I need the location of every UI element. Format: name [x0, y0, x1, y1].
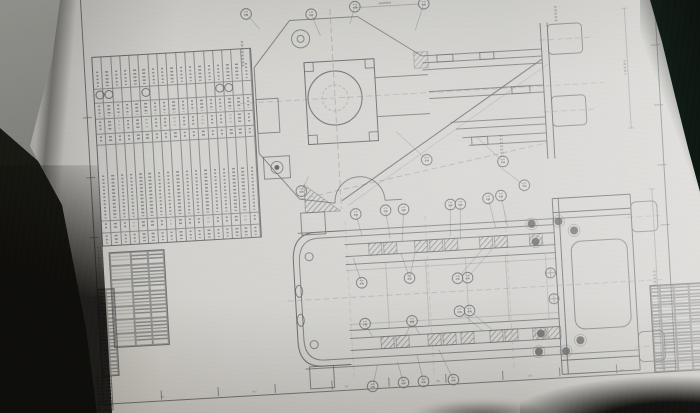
table-text — [112, 269, 131, 277]
table-text — [244, 215, 247, 222]
table-text — [136, 335, 152, 343]
table-text — [130, 174, 135, 217]
title-block-text — [679, 362, 692, 367]
table-text — [124, 234, 127, 242]
title-block-text — [692, 333, 700, 339]
table-text — [124, 70, 127, 85]
shadow-bottom-center — [408, 396, 558, 413]
table-text — [220, 115, 223, 125]
table-text — [115, 235, 118, 243]
table-text — [115, 336, 134, 344]
table-text — [106, 235, 109, 243]
table-text — [98, 106, 101, 117]
table-text — [239, 128, 242, 134]
table-text — [219, 99, 222, 110]
table-text — [204, 170, 209, 213]
table-text — [164, 118, 167, 128]
table-text — [211, 130, 214, 136]
table-text — [170, 232, 173, 240]
table-text — [235, 216, 238, 223]
table-text — [135, 103, 138, 114]
table-text — [144, 103, 147, 114]
table-text — [110, 349, 116, 358]
table-text — [188, 219, 191, 226]
table-text — [115, 322, 134, 330]
center-lines — [235, 0, 610, 214]
table-text — [152, 320, 167, 328]
title-block-text — [676, 315, 689, 321]
title-block-text — [676, 305, 689, 311]
table-text — [118, 135, 121, 141]
table-text — [107, 292, 113, 301]
table-text — [161, 220, 164, 227]
table-text — [133, 234, 136, 242]
callout-balloons — [240, 0, 530, 206]
table-text — [235, 228, 238, 236]
table-text — [207, 65, 210, 80]
table-text — [131, 254, 147, 262]
zone-label: 2 — [250, 390, 255, 393]
title-block-text — [689, 285, 700, 291]
plan-view-outline — [252, 4, 591, 211]
table-text — [217, 65, 220, 80]
table-text — [183, 132, 186, 138]
table-text — [137, 134, 140, 140]
table-text — [148, 173, 153, 216]
table-text — [150, 280, 165, 288]
table-text — [152, 307, 167, 315]
table-text — [189, 66, 192, 81]
table-text — [198, 230, 201, 238]
table-text — [96, 72, 99, 87]
title-block-text — [675, 296, 688, 301]
table-text — [143, 233, 146, 241]
table-text — [152, 68, 155, 83]
table-text — [136, 119, 139, 129]
photo-scene: 1 23456 — [0, 0, 700, 413]
table-text — [100, 136, 103, 142]
table-text — [154, 102, 157, 113]
table-text — [142, 221, 145, 228]
table-text — [113, 295, 132, 303]
table-text — [217, 229, 220, 237]
table-text — [127, 120, 130, 130]
table-text — [107, 105, 110, 116]
table-text — [176, 171, 181, 214]
table-text — [208, 229, 211, 237]
table-text — [105, 223, 108, 230]
table-text — [192, 116, 195, 126]
table-text — [148, 253, 163, 261]
table-text — [198, 66, 201, 81]
table-text — [216, 217, 219, 224]
table-text — [142, 69, 145, 84]
side-view-outline — [291, 193, 667, 390]
table-text — [228, 98, 231, 109]
table-text — [238, 113, 241, 123]
table-text — [112, 282, 131, 290]
table-text — [167, 172, 172, 215]
table-text — [191, 100, 194, 111]
table-text — [109, 321, 115, 330]
dimension-lines — [239, 0, 636, 172]
table-text — [174, 132, 177, 138]
table-text — [145, 119, 148, 129]
parts-table — [91, 48, 262, 247]
table-text — [182, 101, 185, 112]
table-text — [121, 174, 126, 217]
table-text — [115, 70, 118, 85]
table-text — [170, 67, 173, 82]
table-text — [102, 175, 107, 218]
table-text — [134, 294, 150, 302]
table-text — [149, 267, 164, 275]
table-text — [223, 168, 228, 211]
zone-label: 1 — [158, 395, 163, 398]
table-text — [111, 175, 116, 218]
table-text — [220, 130, 223, 136]
title-block-text — [691, 314, 700, 320]
table-text — [109, 136, 112, 142]
table-text — [245, 227, 248, 235]
table-text — [195, 170, 200, 213]
table-text — [210, 115, 213, 125]
title-block-text — [678, 334, 691, 340]
revision-table — [109, 249, 170, 348]
table-text — [117, 104, 120, 115]
table-text — [172, 101, 175, 112]
table-text — [232, 168, 237, 211]
table-text — [108, 306, 114, 315]
table-text — [135, 321, 151, 329]
table-text — [126, 104, 129, 115]
table-text — [158, 172, 163, 215]
title-block-text — [677, 324, 690, 330]
table-text — [173, 117, 176, 127]
table-text — [105, 71, 108, 86]
table-text — [209, 99, 212, 110]
table-text — [161, 232, 164, 240]
table-text — [152, 233, 155, 241]
table-text — [254, 227, 257, 235]
table-text — [151, 293, 166, 301]
table-text — [200, 100, 203, 111]
table-text — [193, 131, 196, 137]
table-text — [170, 220, 173, 227]
title-block-text — [693, 352, 700, 358]
table-text — [109, 335, 115, 344]
table-text — [161, 68, 164, 83]
title-block-text — [690, 304, 700, 310]
table-text — [189, 230, 192, 238]
table-text — [230, 129, 233, 135]
table-text — [132, 268, 148, 276]
table-text — [226, 228, 229, 236]
table-text — [202, 131, 205, 137]
table-text — [180, 231, 183, 239]
table-text — [133, 281, 149, 289]
title-block-text — [693, 362, 700, 368]
table-text — [99, 121, 102, 131]
table-text — [186, 171, 191, 214]
table-text — [128, 135, 131, 141]
table-text — [111, 255, 130, 263]
table-text — [179, 219, 182, 226]
table-text — [225, 216, 228, 223]
title-block-text — [691, 323, 700, 329]
title-block-text — [678, 343, 691, 349]
title-block-text — [692, 342, 700, 347]
table-text — [226, 64, 229, 79]
table-text — [207, 217, 210, 224]
table-text — [156, 133, 159, 139]
table-text — [180, 67, 183, 82]
table-text — [139, 173, 144, 216]
table-text — [198, 218, 201, 225]
table-text — [114, 223, 117, 230]
table-text — [108, 121, 111, 131]
table-text — [114, 309, 133, 317]
table-text — [182, 117, 185, 127]
table-text — [213, 169, 218, 212]
table-text — [133, 69, 136, 84]
table-text — [146, 134, 149, 140]
table-text — [235, 64, 238, 79]
table-text — [133, 222, 136, 229]
table-text — [165, 133, 168, 139]
title-block-text — [679, 353, 692, 359]
table-text — [111, 364, 117, 373]
table-text — [201, 116, 204, 126]
table-text — [153, 334, 168, 342]
table-text — [163, 102, 166, 113]
table-text — [229, 114, 232, 124]
background-corner-topright — [640, 0, 700, 200]
title-block-text — [675, 286, 688, 292]
table-text — [151, 221, 154, 228]
table-text — [134, 308, 150, 316]
hatching — [297, 52, 437, 213]
table-text — [237, 97, 240, 108]
title-block-text — [690, 295, 700, 301]
table-text — [123, 222, 126, 229]
table-text — [241, 167, 246, 210]
table-text — [118, 120, 121, 130]
table-text — [155, 118, 158, 128]
